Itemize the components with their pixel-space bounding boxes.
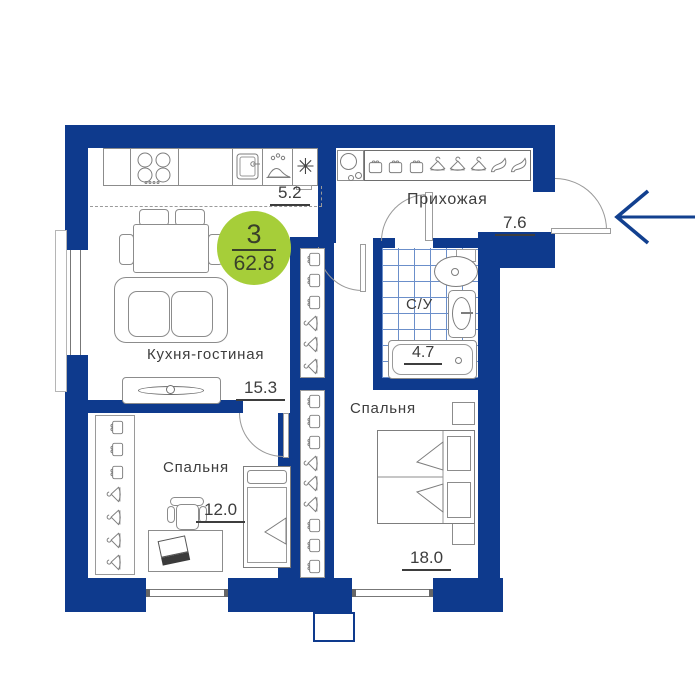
office-chair-arm: [167, 506, 175, 523]
bag-icon: [303, 250, 322, 269]
sink-icon: [234, 150, 261, 184]
bedroom-small-area: 12.0: [196, 500, 245, 523]
window-left-sill: [55, 230, 67, 392]
hanger-icon: [106, 553, 125, 572]
wall-bottom-middle: [228, 578, 352, 612]
kitchen-zone-dash-v: [321, 186, 322, 206]
bag-icon: [303, 433, 322, 452]
bedroom-large-area: 18.0: [402, 548, 451, 571]
hanger-icon: [448, 156, 467, 175]
wall-closet-left: [290, 243, 300, 578]
balcony-marker: [313, 612, 355, 642]
bathroom-label: С/У: [406, 296, 433, 313]
wall-right-upper: [533, 148, 555, 192]
window-bottom-left-glazing: [146, 589, 228, 597]
tv-stand: [122, 377, 221, 404]
window-bottom-right-glazing: [352, 589, 433, 597]
hanger-icon: [303, 314, 322, 333]
washing-machine-icon: [337, 150, 364, 181]
wall-right-lower: [478, 268, 500, 578]
hanger-icon: [106, 531, 125, 550]
bag-icon: [386, 156, 405, 175]
nightstand: [452, 402, 475, 425]
bag-icon: [106, 463, 125, 482]
hallway-label: Прихожая: [407, 191, 488, 209]
hanger-icon: [106, 508, 125, 527]
bag-icon: [303, 536, 322, 555]
wall-bathroom-left: [373, 238, 382, 390]
kitchen-living-label: Кухня-гостиная: [147, 346, 264, 363]
wall-closet-right: [325, 243, 334, 578]
hanger-icon: [106, 485, 125, 504]
heel-shoe-icon: [510, 156, 529, 175]
window-mark: [224, 589, 228, 597]
wall-left: [65, 148, 88, 612]
counter-divider: [262, 148, 263, 186]
fridge-snowflake-icon: ✳: [293, 150, 318, 184]
window-mark: [352, 589, 356, 597]
bedroom-small-label: Спальня: [163, 459, 229, 476]
badge-divider: [232, 249, 276, 251]
hallway-area: 7.6: [495, 213, 535, 236]
hanger-icon: [303, 495, 322, 514]
wall-top: [65, 125, 555, 148]
hanger-icon: [303, 454, 322, 473]
sofa: [114, 277, 228, 343]
bedroom-large-label: Спальня: [350, 400, 416, 417]
dish-rack-icon: [264, 150, 292, 184]
window-mark: [146, 589, 150, 597]
wall-closet-divider: [290, 378, 334, 390]
wall-bathroom-top-b: [433, 238, 478, 248]
bag-icon: [366, 156, 385, 175]
bag-icon: [407, 156, 426, 175]
bag-icon: [106, 440, 125, 459]
bag-icon: [303, 271, 322, 290]
double-bed: [377, 430, 475, 524]
wardrobe-bedroom-small: [95, 415, 135, 575]
wall-bottom-left: [65, 578, 146, 612]
window-mark: [429, 589, 433, 597]
counter-divider: [232, 148, 233, 186]
kitchen-zone-dash: [90, 206, 322, 207]
hanger-icon: [428, 156, 447, 175]
bag-icon: [303, 392, 322, 411]
single-bed: [243, 466, 291, 568]
counter-divider: [178, 148, 179, 186]
wall-entry-corner: [478, 232, 555, 268]
floor-plan: ✳ 5.2 Прихожая 7.6 С/У 4.7: [0, 0, 700, 700]
bag-icon: [303, 412, 322, 431]
wall-bottom-right: [433, 578, 503, 612]
stove-icon: [132, 150, 176, 184]
apartment-badge: 3 62.8: [217, 211, 291, 285]
window-left-glazing: [70, 250, 81, 355]
bedroom-small-door-leaf: [283, 413, 289, 458]
badge-total-area: 62.8: [234, 253, 275, 275]
hallway-shelf: [364, 150, 531, 181]
hanger-icon: [303, 335, 322, 354]
heel-shoe-icon: [490, 156, 509, 175]
closet-bottom: [300, 390, 325, 578]
counter-divider: [130, 148, 131, 186]
dining-table: [133, 224, 209, 273]
hanger-icon: [303, 357, 322, 376]
bag-icon: [303, 293, 322, 312]
toilet: [448, 290, 476, 338]
hanger-icon: [303, 474, 322, 493]
closet-top: [300, 248, 325, 378]
corridor-door-leaf: [360, 244, 366, 292]
entrance-arrow-icon: [598, 183, 698, 251]
bathroom-area: 4.7: [404, 344, 442, 365]
bag-icon: [106, 418, 125, 437]
kitchen-living-area: 15.3: [236, 378, 285, 401]
basin-faucet: [451, 268, 459, 276]
bag-icon: [303, 557, 322, 576]
wall-bathroom-bottom: [373, 378, 480, 390]
nightstand: [452, 522, 475, 545]
dining-chair: [119, 234, 134, 265]
kitchen-zone-area: 5.2: [270, 183, 310, 206]
badge-rooms-count: 3: [246, 221, 261, 247]
bag-icon: [303, 516, 322, 535]
bedroom-small-door-arc: [239, 413, 283, 457]
hanger-icon: [469, 156, 488, 175]
